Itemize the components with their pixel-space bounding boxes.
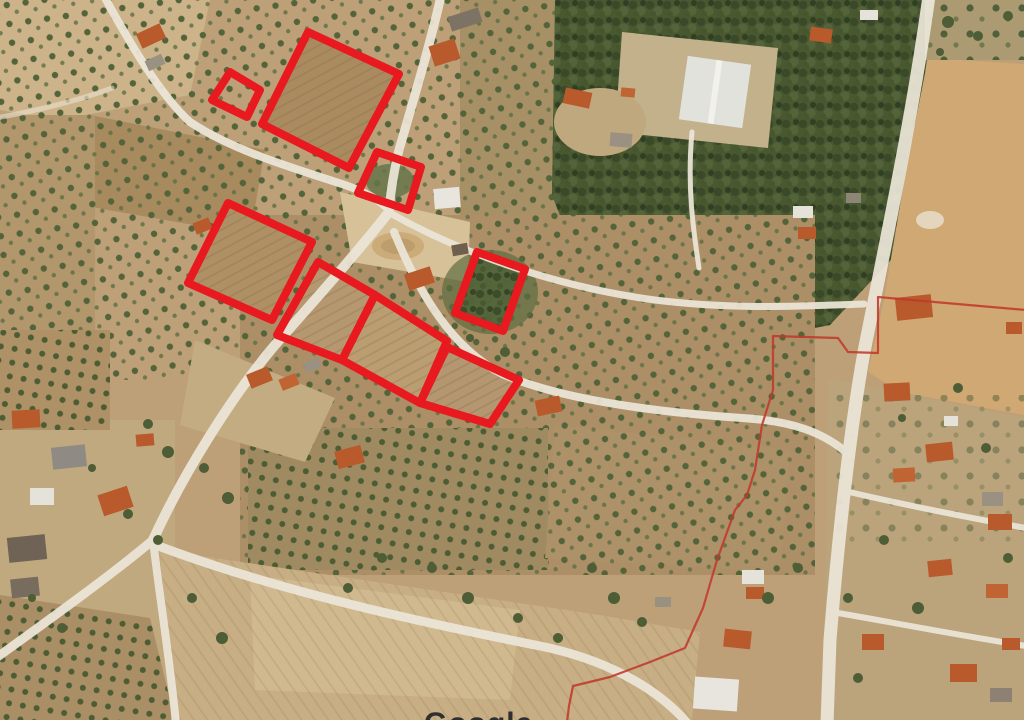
building [51, 444, 87, 469]
building [10, 577, 40, 599]
tree [762, 592, 774, 604]
tree [553, 633, 563, 643]
tree [587, 563, 597, 573]
tree [898, 414, 906, 422]
building [746, 587, 764, 599]
building [798, 227, 816, 239]
tree [28, 594, 36, 602]
tree [936, 48, 944, 56]
tree [942, 16, 954, 28]
tree [466, 334, 474, 342]
building [925, 442, 954, 463]
tree [513, 613, 523, 623]
pale-mound [916, 211, 944, 229]
tree [343, 583, 353, 593]
orchard-area [545, 425, 790, 572]
tree [162, 446, 174, 458]
aerial-map: Google [0, 0, 1024, 720]
tree [1003, 11, 1013, 21]
tree [981, 443, 991, 453]
tree [57, 623, 67, 633]
tree [153, 535, 163, 545]
building [862, 634, 884, 650]
building [990, 688, 1012, 702]
tree [608, 592, 620, 604]
tree [462, 592, 474, 604]
tree [143, 419, 153, 429]
tree [427, 563, 437, 573]
building [846, 193, 861, 203]
tree [953, 383, 963, 393]
building [793, 206, 813, 218]
building [1006, 322, 1022, 334]
building [860, 10, 878, 20]
tree [222, 492, 234, 504]
building [609, 132, 632, 148]
building [884, 382, 911, 401]
tree [216, 632, 228, 644]
building [433, 187, 461, 209]
tree [843, 593, 853, 603]
building [982, 492, 1003, 506]
building [950, 664, 977, 682]
building [1002, 638, 1020, 650]
building [723, 629, 752, 650]
building [7, 534, 47, 563]
tree [912, 602, 924, 614]
building [893, 467, 916, 482]
building [944, 416, 958, 426]
building [621, 87, 636, 97]
building [986, 584, 1008, 598]
building [988, 514, 1012, 530]
tree [973, 31, 983, 41]
tree [853, 673, 863, 683]
tree [187, 593, 197, 603]
tree [123, 509, 133, 519]
building [655, 597, 671, 607]
terrain [0, 0, 1024, 720]
tree [1003, 553, 1013, 563]
map-watermark: Google [424, 707, 533, 720]
building [30, 488, 54, 505]
building [742, 570, 764, 584]
tree [88, 464, 96, 472]
tree [199, 463, 209, 473]
tree [500, 347, 510, 357]
building [693, 677, 739, 712]
building [136, 433, 155, 447]
tree [377, 553, 387, 563]
building [12, 409, 41, 428]
tree [637, 617, 647, 627]
building [927, 559, 953, 577]
tree [879, 535, 889, 545]
tree [793, 563, 803, 573]
